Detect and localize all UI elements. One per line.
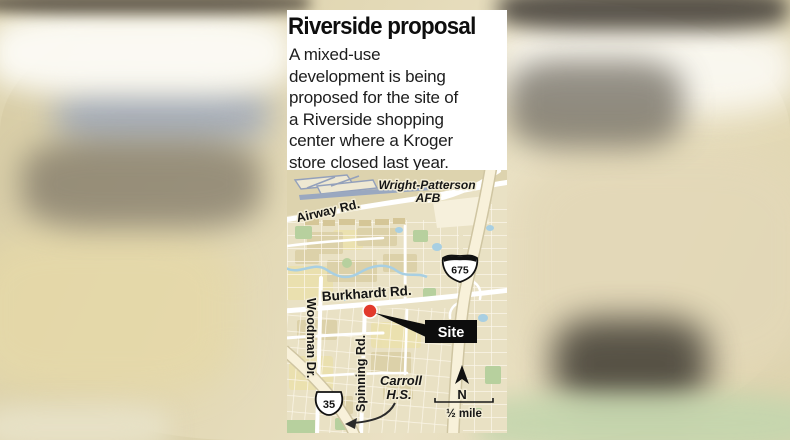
site-marker-dot (363, 304, 377, 318)
intro-line: center where a Kroger (289, 130, 506, 152)
intro-line: A mixed-use (289, 44, 506, 66)
background-blob-white-left (0, 10, 293, 95)
woodman-road-label: Woodman Dr. (304, 298, 318, 378)
background-blob-dark-left (22, 140, 262, 228)
background-blob-beige-left (0, 230, 235, 395)
us-35-number: 35 (323, 399, 335, 411)
background-blob-cream-bottom-left (0, 405, 170, 440)
riverside-proposal-card: Riverside proposal A mixed-use developme… (287, 10, 507, 433)
spinning-road-label: Spinning Rd. (354, 335, 368, 412)
background-blob-top-right-bar (498, 0, 788, 30)
scale-label: ½ mile (446, 408, 482, 420)
background-blob-top-left-bar (0, 0, 310, 14)
afb-label-line1: Wright-Patterson (378, 178, 475, 192)
intro-text: A mixed-use development is being propose… (289, 44, 506, 173)
intro-line: proposed for the site of (289, 87, 506, 109)
carroll-hs-label-line2: H.S. (386, 387, 411, 402)
map-svg: 675 35 Wright-Patterson AFB Airway Rd. B… (287, 170, 507, 433)
background-blob-dark-right (508, 60, 683, 148)
afb-label-line2: AFB (415, 191, 441, 205)
carroll-hs-label-line1: Carroll (380, 373, 422, 388)
north-label: N (457, 387, 466, 402)
interstate-675-number: 675 (451, 265, 469, 277)
intro-line: a Riverside shopping (289, 109, 506, 131)
locator-map: 675 35 Wright-Patterson AFB Airway Rd. B… (287, 170, 507, 433)
background-blob-green-bottom (478, 393, 790, 440)
site-label: Site (438, 325, 465, 341)
graphic-title: Riverside proposal (288, 13, 491, 41)
intro-line: development is being (289, 66, 506, 88)
